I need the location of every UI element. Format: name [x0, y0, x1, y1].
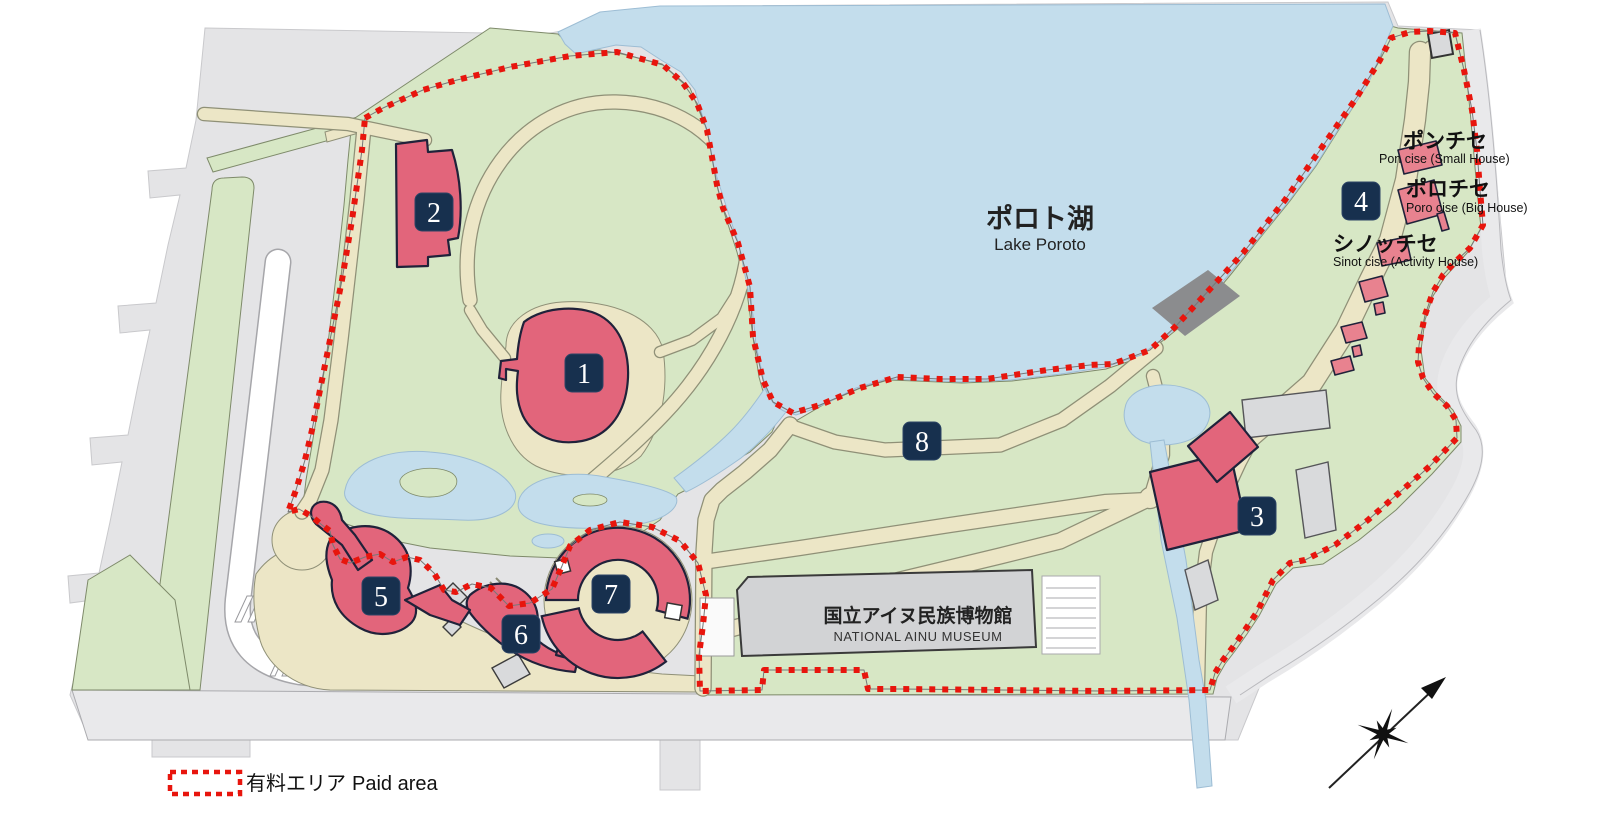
marker-3: 3 — [1238, 497, 1276, 535]
pond-small — [532, 534, 564, 548]
legend-label-en: Paid area — [352, 773, 438, 795]
pon-cise-label-jp: ポンチセ — [1403, 129, 1487, 153]
kotan-shed-a — [1374, 302, 1385, 315]
compass-north-icon — [1329, 677, 1446, 788]
poro-cise-label-en: Poro cise (Big House) — [1406, 201, 1528, 215]
marker-6-label: 6 — [514, 620, 528, 651]
marker-1-label: 1 — [577, 359, 591, 390]
marker-7-label: 7 — [604, 580, 618, 611]
marker-5-label: 5 — [374, 582, 388, 613]
pond-east — [1124, 385, 1210, 445]
pon-cise-label-en: Pon cise (Small House) — [1379, 152, 1510, 166]
marker-8-label: 8 — [915, 427, 929, 458]
marker-6: 6 — [502, 615, 540, 653]
bottom-road — [72, 690, 1231, 740]
poro-cise-label-jp: ポロチセ — [1406, 177, 1490, 201]
sinot-cise-label-jp: シノッチセ — [1333, 233, 1438, 256]
park-map: 1 2 3 4 5 6 7 8 ポロト湖 Lake Poroto 国立アイヌ民族… — [0, 0, 1600, 832]
lake-label-en: Lake Poroto — [994, 235, 1086, 254]
marker-7: 7 — [592, 575, 630, 613]
legend: 有料エリア Paid area — [170, 772, 438, 795]
marker-5: 5 — [362, 577, 400, 615]
legend-label-jp: 有料エリア — [246, 772, 346, 795]
pond-island-2 — [573, 494, 607, 506]
marker-3-label: 3 — [1250, 502, 1264, 533]
marker-2: 2 — [415, 193, 453, 231]
legend-paid-area-swatch — [170, 772, 240, 794]
pond-island-1 — [400, 468, 457, 497]
marker-1: 1 — [565, 354, 603, 392]
museum-label-jp: 国立アイヌ民族博物館 — [823, 604, 1012, 627]
museum-label-en: NATIONAL AINU MUSEUM — [834, 629, 1003, 644]
lake-label-jp: ポロト湖 — [986, 204, 1094, 234]
kotan-shed-b — [1352, 345, 1362, 357]
map-canvas: 1 2 3 4 5 6 7 8 ポロト湖 Lake Poroto 国立アイヌ民族… — [0, 0, 1600, 832]
marker-2-label: 2 — [427, 198, 441, 229]
marker-8: 8 — [903, 422, 941, 460]
sinot-cise-label-en: Sinot cise (Activity House) — [1333, 255, 1478, 269]
gate-booth-east — [665, 603, 682, 620]
marker-4: 4 — [1342, 182, 1380, 220]
marker-4-label: 4 — [1354, 187, 1368, 218]
